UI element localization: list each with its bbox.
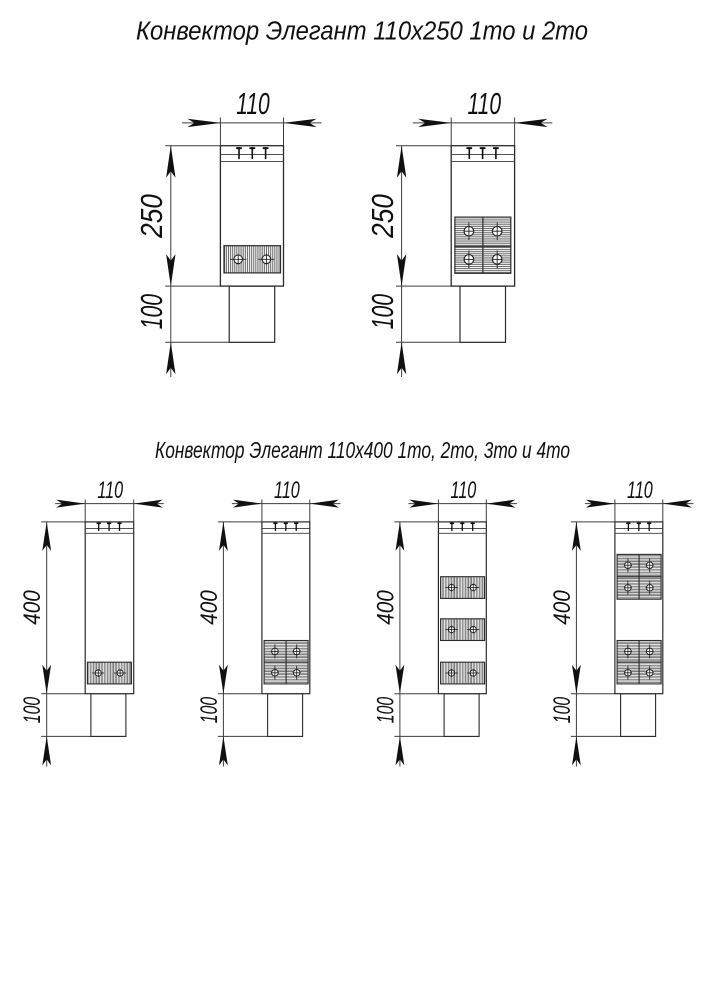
svg-text:250: 250 [135, 194, 169, 239]
svg-text:110: 110 [97, 478, 123, 504]
svg-text:110: 110 [451, 478, 477, 504]
svg-text:100: 100 [20, 697, 46, 723]
svg-text:100: 100 [366, 294, 400, 329]
svg-text:400: 400 [373, 590, 399, 625]
svg-text:Конвектор Элегант 110х250 1то: Конвектор Элегант 110х250 1то и 2то [136, 16, 588, 46]
svg-text:110: 110 [468, 87, 502, 121]
svg-text:250: 250 [366, 194, 400, 239]
svg-text:100: 100 [550, 697, 576, 723]
svg-text:100: 100 [373, 697, 399, 723]
svg-text:400: 400 [550, 590, 576, 625]
svg-text:110: 110 [627, 478, 653, 504]
svg-text:110: 110 [236, 87, 270, 121]
svg-text:110: 110 [274, 478, 300, 504]
svg-text:400: 400 [20, 590, 46, 625]
svg-text:100: 100 [197, 697, 223, 723]
svg-text:Конвектор Элегант 110х400 1то,: Конвектор Элегант 110х400 1то, 2то, 3то … [155, 437, 570, 463]
svg-text:400: 400 [197, 590, 223, 625]
svg-text:100: 100 [135, 294, 169, 329]
